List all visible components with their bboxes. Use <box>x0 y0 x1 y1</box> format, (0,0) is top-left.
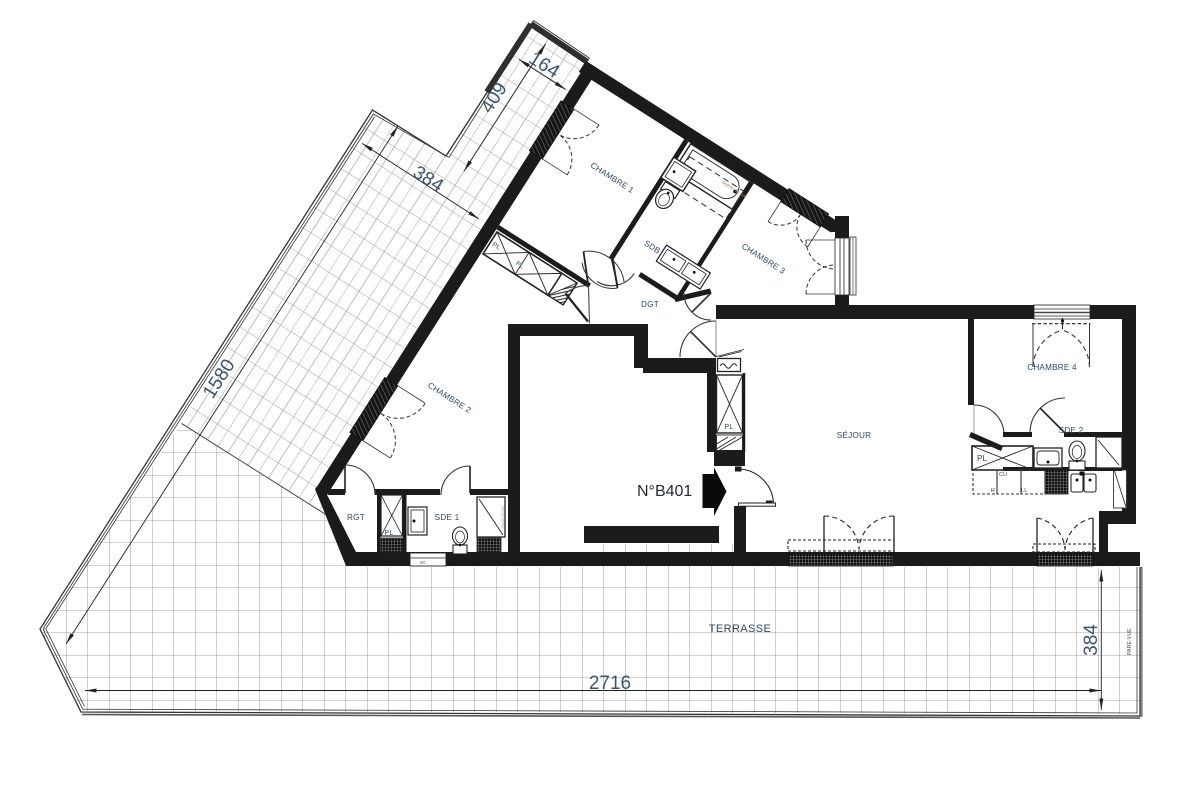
svg-text:PL: PL <box>977 454 988 463</box>
svg-text:90x120 ACCES: 90x120 ACCES <box>501 506 505 528</box>
svg-text:BC: BC <box>420 560 427 565</box>
svg-text:RGT: RGT <box>347 513 365 522</box>
svg-text:2716: 2716 <box>589 673 631 694</box>
svg-text:SÉJOUR: SÉJOUR <box>837 430 871 440</box>
svg-text:CU: CU <box>999 472 1007 478</box>
svg-text:PL: PL <box>385 530 394 537</box>
svg-text:PL: PL <box>725 424 734 431</box>
svg-text:TERRASSE: TERRASSE <box>709 623 772 635</box>
svg-text:R: R <box>991 488 995 494</box>
svg-text:SDE 1: SDE 1 <box>435 513 460 522</box>
svg-text:SDE 2: SDE 2 <box>1059 426 1084 435</box>
svg-text:LL: LL <box>1021 488 1028 494</box>
svg-text:PARE-VUE: PARE-VUE <box>1127 628 1133 655</box>
svg-text:384: 384 <box>1081 624 1102 656</box>
svg-text:N°B401: N°B401 <box>637 483 692 500</box>
svg-text:CHAMBRE 4: CHAMBRE 4 <box>1027 363 1077 372</box>
svg-text:DGT: DGT <box>641 300 659 309</box>
